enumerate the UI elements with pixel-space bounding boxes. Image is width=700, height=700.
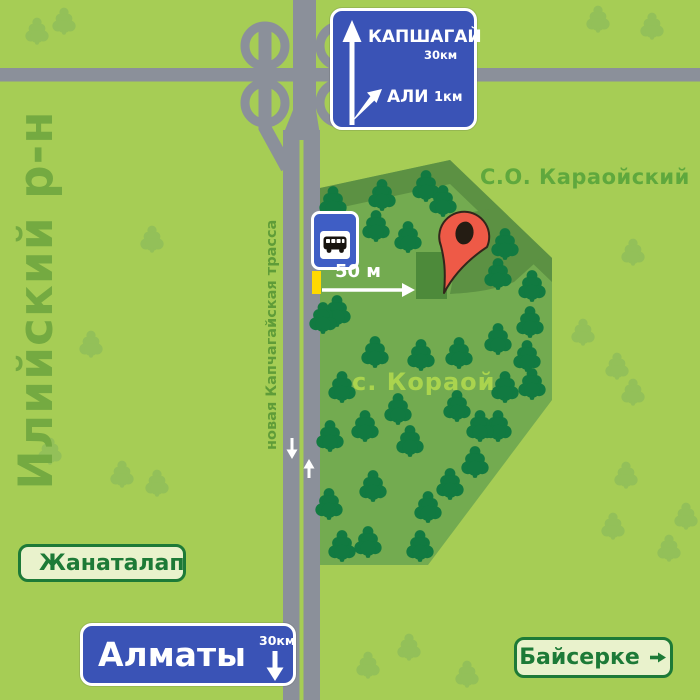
region-label: Илийский р-н [7,105,67,495]
straight-ahead-arrow-icon [343,20,362,125]
building [416,252,447,299]
zhanatalap-direction-sign: Жанаталап [18,544,186,582]
road-name-label: новая Капчагайская трасса [263,220,281,450]
zhanatalap-label: Жанаталап [39,551,185,576]
down-arrow-icon [264,649,286,683]
village-label: с. Кораой [352,368,495,396]
almaty-distance: 30км [259,633,295,648]
bus-stop-pole [312,271,321,294]
right-arrow-icon [648,650,668,665]
distance-secondary: 1км [434,90,463,105]
destination-secondary: АЛИ [387,87,429,107]
road-median [300,140,304,700]
branch-right-arrow-icon [350,89,382,124]
almaty-destination: Алматы [98,635,246,674]
distance-primary: 30км [424,48,457,62]
highway-direction-sign: КАПШАГАЙ 30км АЛИ 1км [330,8,477,130]
schematic-map: Илийский р-н новая Капчагайская трасса С… [0,0,700,700]
distance-label: 50 м [328,261,388,282]
bayserke-direction-sign: Байсерке [514,637,673,678]
bayserke-label: Байсерке [519,645,640,670]
district-label: С.О. Караойский [480,165,690,189]
destination-primary: КАПШАГАЙ [368,27,482,47]
vertical-road-upper [293,0,316,125]
almaty-direction-sign: Алматы 30км [80,623,296,686]
